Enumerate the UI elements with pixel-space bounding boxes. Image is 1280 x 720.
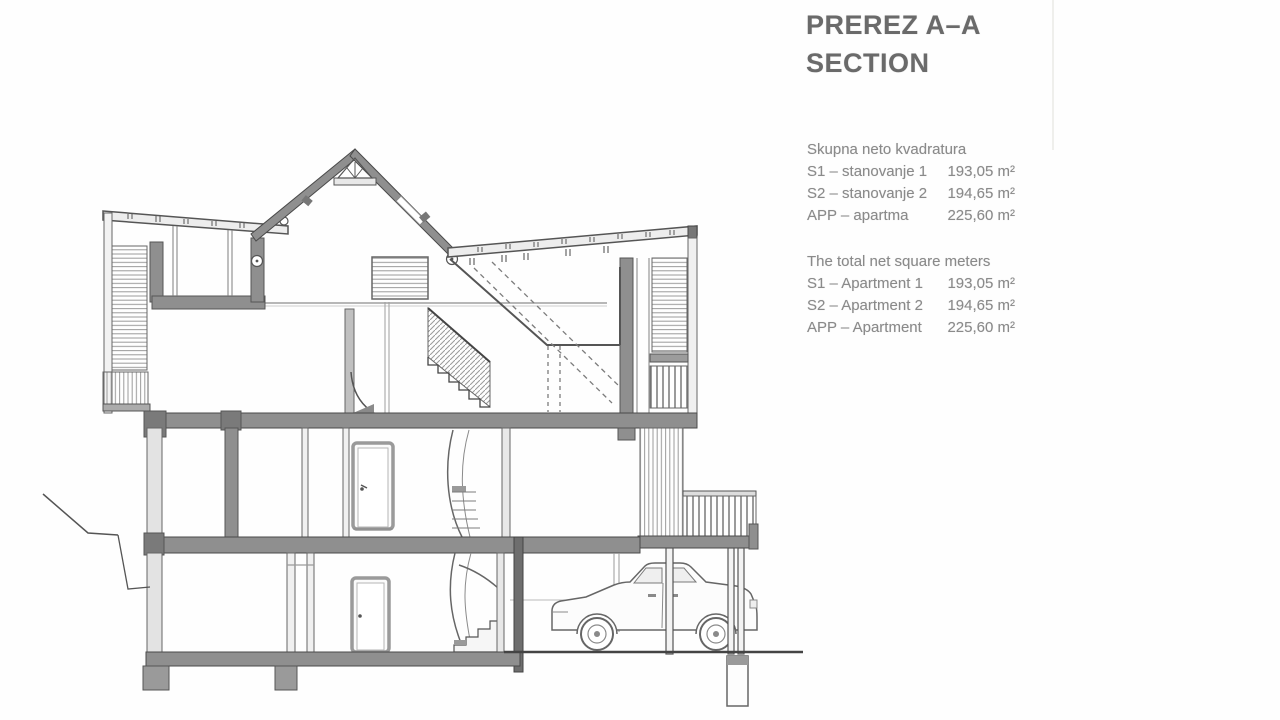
unit-area: 225,60 m² [943, 205, 1015, 227]
summary-row: S2 – Apartment 2 194,65 m² [807, 295, 1015, 317]
summary-row: S2 – stanovanje 2 194,65 m² [807, 183, 1015, 205]
roof-slope-left [251, 149, 359, 241]
left-louver-screen [112, 246, 147, 370]
garage-door [352, 578, 389, 652]
right-outer-wall [688, 238, 697, 420]
left-wing [103, 211, 288, 413]
attic-louver-shutter [652, 258, 687, 352]
car [552, 553, 757, 654]
scanned-plan-page: PREREZ A–A SECTION Skupna neto kvadratur… [0, 0, 1280, 720]
section-drawing [0, 0, 810, 720]
left-gallery-slab [152, 296, 265, 309]
hidden-stair-dashed [474, 262, 620, 412]
left-balustrade [103, 372, 148, 406]
drawing-title: PREREZ A–A SECTION [806, 6, 981, 82]
louvered-window [372, 257, 428, 299]
unit-area: 194,65 m² [943, 183, 1015, 205]
partition-wall [343, 428, 349, 538]
unit-area: 194,65 m² [943, 295, 1015, 317]
attic-level [345, 238, 697, 420]
garage-wall [287, 553, 295, 652]
stair-wall [502, 428, 510, 537]
attic-partition-wall [345, 309, 354, 413]
attic-wall-cut [620, 258, 633, 420]
footing [143, 666, 169, 690]
summary-row: APP – apartma 225,60 m² [807, 205, 1015, 227]
unit-area: 225,60 m² [943, 317, 1015, 339]
carport-post [666, 548, 673, 654]
unit-area: 193,05 m² [943, 273, 1015, 295]
area-summary-english: The total net square meters S1 – Apartme… [807, 251, 1015, 339]
terrain-line [43, 494, 118, 535]
title-line-slovenian: PREREZ A–A [806, 6, 981, 44]
straight-stair [428, 259, 620, 412]
unit-label: APP – Apartment [807, 317, 943, 339]
summary-heading: The total net square meters [807, 251, 1015, 273]
left-wall-cut [150, 242, 163, 302]
balcony-balustrade [683, 496, 756, 536]
slab-junction [144, 533, 164, 555]
car-tail-lamp [750, 600, 757, 608]
unit-area: 193,05 m² [943, 161, 1015, 183]
unit-label: S2 – Apartment 2 [807, 295, 943, 317]
title-line-english: SECTION [806, 44, 981, 82]
beam-stub [618, 428, 635, 440]
spiral-stair-upper [448, 430, 480, 537]
interior-wall-cut [225, 428, 238, 538]
car-door-handle [648, 594, 656, 597]
balcony-handrail [683, 491, 756, 496]
door-handle [358, 614, 362, 618]
stair-wall [497, 553, 504, 653]
floor-slab [146, 652, 520, 666]
unit-label: S2 – stanovanje 2 [807, 183, 943, 205]
unit-label: S1 – Apartment 1 [807, 273, 943, 295]
unit-label: APP – apartma [807, 205, 943, 227]
fascia-end [688, 226, 697, 238]
area-summary-slovenian: Skupna neto kvadratura S1 – stanovanje 1… [807, 139, 1015, 227]
middle-louver-screen [640, 428, 683, 536]
summary-row: S1 – Apartment 1 193,05 m² [807, 273, 1015, 295]
garage-wall [307, 553, 314, 652]
gable-roof [251, 149, 458, 267]
carport-post [738, 548, 744, 654]
footing [275, 666, 297, 690]
attic-balustrade [650, 366, 688, 408]
garage-ceiling-slab [146, 537, 640, 553]
attic-rail [650, 354, 688, 362]
terrain [43, 494, 150, 589]
left-balustrade-sill [103, 404, 150, 411]
unit-label: S1 – stanovanje 1 [807, 161, 943, 183]
left-wall [147, 553, 162, 653]
balcony-deck [638, 536, 758, 548]
skylight [396, 196, 425, 225]
garage-steps [454, 621, 503, 652]
summary-row: S1 – stanovanje 1 193,05 m² [807, 161, 1015, 183]
left-wall [147, 428, 162, 538]
slab-junction [221, 411, 241, 430]
summary-row: APP – Apartment 225,60 m² [807, 317, 1015, 339]
door-handle [360, 487, 364, 491]
deck-edge-post [749, 524, 758, 549]
interior-door [353, 443, 393, 529]
eave-wall-cut [251, 238, 264, 302]
clerestory-mullions [173, 226, 232, 296]
scan-page-edge [1052, 0, 1054, 150]
stair-handrail [450, 259, 620, 345]
carport-post [728, 548, 734, 654]
summary-heading: Skupna neto kvadratura [807, 139, 1015, 161]
middle-level [147, 428, 683, 538]
partition-wall [302, 428, 308, 538]
foundation [143, 652, 520, 690]
